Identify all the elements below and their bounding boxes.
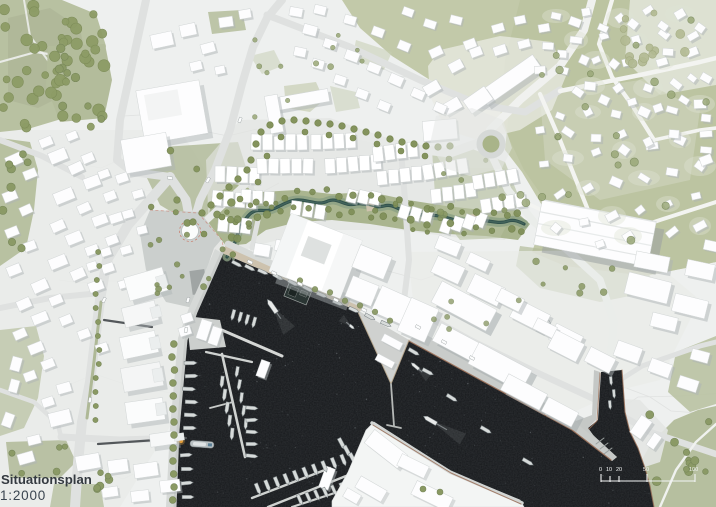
svg-text:100: 100 xyxy=(689,467,698,473)
svg-text:50: 50 xyxy=(643,467,649,473)
svg-text:Situationsplan: Situationsplan xyxy=(1,472,92,487)
svg-text:1:2000: 1:2000 xyxy=(0,488,46,503)
svg-text:10: 10 xyxy=(606,467,612,473)
svg-text:0: 0 xyxy=(599,467,602,473)
svg-text:20: 20 xyxy=(616,467,622,473)
